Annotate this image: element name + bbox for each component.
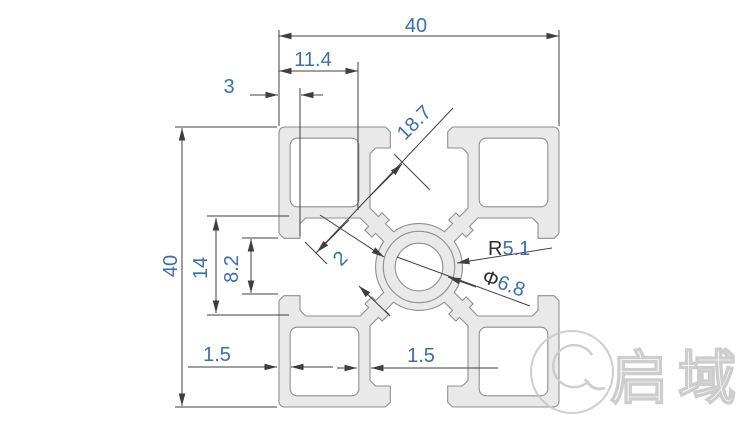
- profile-drawing: 40 11.4 3 40 14 8.2 18.7: [0, 0, 751, 428]
- watermark-logo: 启域: [531, 331, 746, 413]
- dim-wall-inner-label: 1.5: [407, 345, 435, 367]
- dim-boss-radius-label: R5.1: [488, 238, 530, 260]
- center-hole: [395, 243, 443, 291]
- corner-chamber-bottom-left: [290, 327, 359, 396]
- drawing-canvas: 40 11.4 3 40 14 8.2 18.7: [0, 0, 751, 428]
- dim-lip-depth-label: 3: [223, 76, 234, 98]
- dim-side-height-label: 40: [160, 255, 182, 277]
- dim-slot-opening-label: 8.2: [221, 255, 243, 283]
- corner-chamber-top-right: [479, 138, 548, 207]
- dim-slot-opening: [242, 238, 278, 294]
- corner-chamber-bottom-right: [479, 327, 548, 396]
- dim-slot-offset-label: 11.4: [294, 49, 331, 71]
- dim-top-width-label: 40: [405, 15, 427, 37]
- dim-wall-left-label: 1.5: [203, 344, 231, 366]
- dim-slot-inner-width: [207, 216, 289, 315]
- watermark-brand-text: 启域: [610, 346, 746, 411]
- dim-slot-inner-width-label: 14: [190, 257, 212, 279]
